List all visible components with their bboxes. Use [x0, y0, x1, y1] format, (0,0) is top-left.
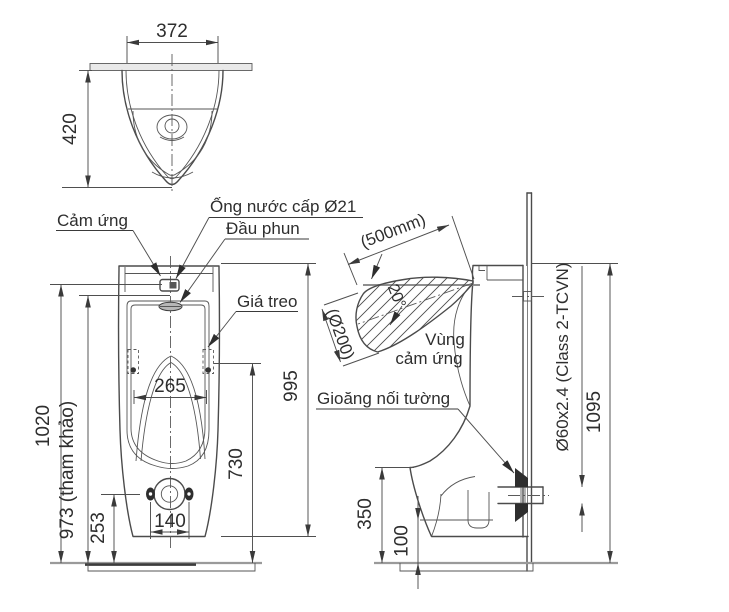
dim-1020: 1020 [33, 405, 54, 447]
top-view-bowl-outer-inner-line [126, 71, 219, 179]
side-view: (500mm) 20° (Ø200) Vùng cảm ứng Gioăng n… [300, 193, 618, 589]
dim-pipe-spec: Ø60x2.4 (Class 2-TCVN) [553, 263, 572, 452]
technical-drawing-urinal: 372 420 [0, 0, 729, 612]
label-ong-nuoc: Ống nước cấp Ø21 [210, 196, 356, 216]
ref-line-pointer [372, 254, 383, 279]
dim-o200: (Ø200) [322, 306, 358, 362]
floor-slab-edge-side [400, 563, 533, 571]
dim-20deg: 20° [384, 282, 409, 311]
front-view: Cảm ứng Ống nước cấp Ø21 Đầu phun Giá tr… [33, 196, 363, 571]
leader-dau-phun [180, 239, 225, 303]
dim-140: 140 [154, 511, 186, 532]
sensor-eye [170, 282, 177, 289]
drain-bolt-hole-right [187, 492, 190, 495]
label-gioang: Gioăng nối tường [317, 389, 450, 408]
drain-flange [154, 479, 185, 510]
dim-253: 253 [88, 512, 109, 544]
label-gia-treo: Giá treo [237, 292, 297, 311]
dim-265: 265 [154, 376, 186, 397]
label-vung: Vùng [425, 330, 465, 349]
dim-1095: 1095 [584, 391, 605, 433]
dim-995: 995 [281, 370, 302, 402]
ext-line [344, 253, 357, 285]
dim-372: 372 [156, 21, 188, 42]
drawing-svg: 372 420 [0, 0, 729, 612]
top-view-wall-shelf [90, 64, 252, 71]
leader-gia-treo [208, 312, 236, 348]
dim-730: 730 [226, 448, 247, 480]
label-dau-phun: Đầu phun [226, 219, 300, 238]
drain-bolt-hole-left [149, 492, 152, 495]
dim-350: 350 [355, 498, 376, 530]
ext-line [324, 293, 358, 305]
label-cam-ung-zone: cảm ứng [395, 349, 462, 368]
ext-line [452, 216, 474, 279]
dim-420: 420 [60, 113, 81, 145]
drain-hole [161, 486, 177, 502]
hanger-bolt-left [130, 367, 136, 373]
leader-cam-ung [133, 231, 161, 277]
dim-100: 100 [392, 525, 413, 557]
dim-500mm: (500mm) [358, 210, 428, 252]
hanger-bolt-right [205, 367, 211, 373]
dim-973: 973 (tham khảo) [57, 401, 78, 539]
top-view: 372 420 [60, 21, 252, 194]
label-cam-ung: Cảm ứng [57, 211, 128, 230]
